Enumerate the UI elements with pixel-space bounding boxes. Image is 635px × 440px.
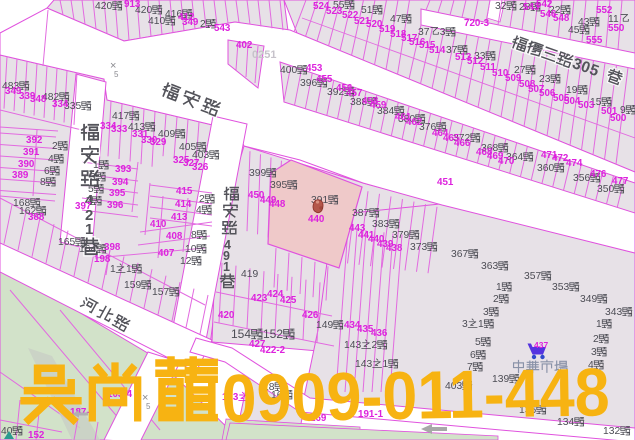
svg-text:367: 367 — [451, 249, 468, 260]
svg-text:8: 8 — [191, 230, 197, 241]
svg-text:1: 1 — [93, 160, 99, 171]
svg-text:550: 550 — [608, 23, 625, 34]
svg-text:408: 408 — [166, 231, 183, 242]
svg-text:546: 546 — [540, 9, 557, 20]
svg-text:2: 2 — [372, 340, 378, 351]
svg-text:396: 396 — [300, 78, 317, 89]
svg-text:419: 419 — [241, 269, 258, 280]
svg-text:343: 343 — [605, 307, 622, 318]
svg-text:400: 400 — [280, 65, 297, 76]
svg-text:387: 387 — [352, 208, 369, 219]
svg-text:152: 152 — [28, 430, 45, 440]
svg-text:543: 543 — [523, 2, 540, 13]
svg-text:373: 373 — [410, 242, 427, 253]
svg-text:143: 143 — [344, 340, 361, 351]
svg-text:3: 3 — [483, 307, 489, 318]
svg-text:1: 1 — [110, 264, 116, 275]
svg-text:5: 5 — [146, 402, 151, 411]
svg-text:476: 476 — [590, 169, 607, 180]
svg-text:149: 149 — [316, 320, 333, 331]
svg-text:437: 437 — [534, 340, 548, 350]
svg-text:398: 398 — [104, 242, 121, 253]
svg-text:357: 357 — [524, 271, 541, 282]
svg-text:159: 159 — [124, 280, 141, 291]
svg-text:399: 399 — [249, 168, 266, 179]
svg-text:363: 363 — [481, 261, 498, 272]
svg-text:360: 360 — [537, 163, 554, 174]
svg-text:388: 388 — [28, 212, 45, 223]
svg-text:2: 2 — [52, 141, 58, 152]
svg-text:448: 448 — [269, 199, 286, 210]
svg-text:426: 426 — [302, 310, 319, 321]
svg-text:165: 165 — [58, 237, 75, 248]
svg-text:389: 389 — [12, 170, 29, 181]
svg-text:555: 555 — [586, 35, 603, 46]
svg-text:1: 1 — [596, 319, 602, 330]
svg-text:4: 4 — [48, 154, 54, 165]
svg-text:356: 356 — [573, 173, 590, 184]
svg-text:474: 474 — [566, 158, 583, 169]
svg-text:2: 2 — [199, 194, 205, 205]
svg-text:523: 523 — [326, 6, 343, 17]
svg-text:503: 503 — [578, 100, 595, 111]
svg-text:1: 1 — [126, 264, 132, 275]
svg-text:43: 43 — [578, 17, 590, 28]
svg-text:422-2: 422-2 — [260, 345, 286, 356]
svg-text:397: 397 — [75, 201, 92, 212]
svg-text:440: 440 — [308, 214, 325, 225]
svg-text:393: 393 — [115, 164, 132, 175]
svg-text:425: 425 — [280, 295, 297, 306]
svg-text:12: 12 — [180, 256, 192, 267]
svg-text:4: 4 — [196, 205, 202, 216]
svg-text:543: 543 — [214, 23, 231, 34]
svg-text:0909-011-448: 0909-011-448 — [221, 354, 610, 437]
svg-text:3: 3 — [462, 319, 468, 330]
svg-text:414: 414 — [175, 199, 192, 210]
svg-text:5: 5 — [114, 70, 119, 79]
svg-text:391: 391 — [23, 147, 40, 158]
svg-text:8: 8 — [40, 177, 46, 188]
svg-text:349: 349 — [580, 294, 597, 305]
svg-text:477: 477 — [612, 176, 629, 187]
svg-text:10: 10 — [185, 244, 197, 255]
svg-text:348: 348 — [30, 94, 47, 105]
svg-text:5: 5 — [475, 337, 481, 348]
svg-text:415: 415 — [176, 186, 193, 197]
svg-text:2: 2 — [200, 19, 206, 30]
svg-text:462: 462 — [406, 117, 423, 128]
svg-text:720-3: 720-3 — [464, 18, 490, 29]
svg-text:451: 451 — [437, 177, 454, 188]
svg-text:459: 459 — [370, 100, 387, 111]
svg-text:2: 2 — [593, 334, 599, 345]
svg-text:410: 410 — [148, 16, 165, 27]
svg-text:1: 1 — [223, 260, 230, 274]
svg-text:390: 390 — [18, 159, 35, 170]
svg-text:394: 394 — [112, 177, 129, 188]
svg-text:383: 383 — [372, 219, 389, 230]
svg-text:413: 413 — [171, 212, 188, 223]
svg-text:457: 457 — [346, 88, 363, 99]
svg-text:514: 514 — [429, 45, 446, 56]
svg-text:438: 438 — [386, 243, 403, 254]
svg-text:1: 1 — [496, 282, 502, 293]
svg-text:412: 412 — [178, 12, 195, 23]
svg-text:51: 51 — [361, 5, 373, 16]
svg-text:353: 353 — [552, 282, 569, 293]
svg-text:470: 470 — [498, 156, 515, 167]
svg-text:395: 395 — [270, 180, 287, 191]
svg-text:402: 402 — [236, 40, 253, 51]
svg-text:3: 3 — [440, 27, 446, 38]
svg-text:329: 329 — [150, 137, 167, 148]
svg-text:395: 395 — [109, 188, 126, 199]
svg-text:455: 455 — [316, 74, 333, 85]
svg-text:2: 2 — [493, 294, 499, 305]
svg-text:453: 453 — [306, 63, 323, 74]
svg-text:410: 410 — [150, 219, 167, 230]
svg-text:420: 420 — [218, 310, 235, 321]
svg-text:198: 198 — [94, 254, 111, 265]
svg-text:326: 326 — [192, 162, 209, 173]
svg-text:152: 152 — [263, 327, 283, 341]
svg-text:6: 6 — [44, 166, 50, 177]
svg-text:333: 333 — [111, 124, 128, 135]
svg-text:334: 334 — [52, 99, 69, 110]
svg-text:392: 392 — [26, 135, 43, 146]
svg-text:466: 466 — [454, 138, 471, 149]
svg-text:423: 423 — [251, 293, 268, 304]
svg-text:5: 5 — [88, 184, 94, 195]
svg-text:552: 552 — [596, 5, 613, 16]
svg-text:1: 1 — [85, 221, 93, 238]
svg-text:379: 379 — [392, 230, 409, 241]
svg-text:396: 396 — [107, 200, 124, 211]
svg-text:420: 420 — [95, 1, 112, 12]
svg-text:500: 500 — [610, 113, 627, 124]
svg-text:0251: 0251 — [252, 49, 276, 61]
svg-text:157: 157 — [152, 287, 169, 298]
svg-text:1: 1 — [478, 319, 484, 330]
svg-text:407: 407 — [158, 248, 175, 259]
svg-text:3: 3 — [90, 172, 96, 183]
svg-text:32: 32 — [495, 1, 507, 12]
svg-text:436: 436 — [371, 328, 388, 339]
svg-text:913: 913 — [124, 0, 141, 10]
